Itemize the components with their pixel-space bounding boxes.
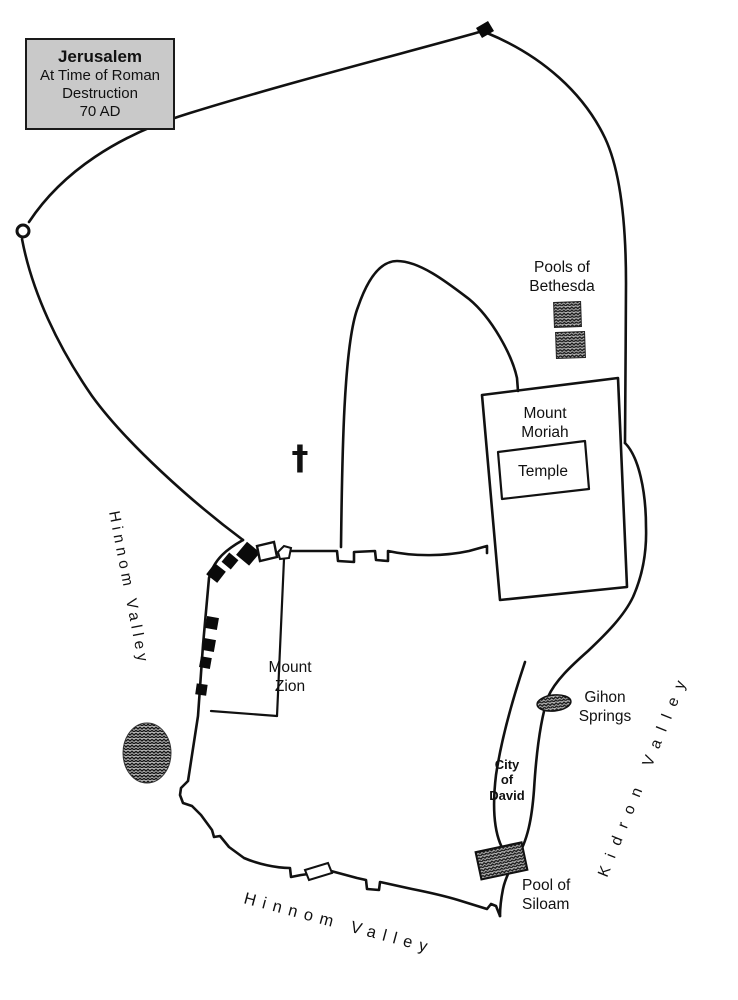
pool-of-siloam-rect [476,842,528,879]
label-hinnom-valley-south: Hinnom Valley [242,889,436,957]
bethesda-pool-upper [554,302,582,328]
hinnom-valley-pool-ellipse [123,723,171,783]
west-wall [22,239,243,540]
map-subtitle-line1: At Time of Roman [40,67,160,85]
bethesda-pool-lower [556,331,586,358]
south-west-and-south-wall [180,540,500,916]
label-pool-of-siloam: Pool of Siloam [522,877,571,913]
pool-siloam-line2: Siloam [522,896,569,913]
map-title: Jerusalem [58,47,142,67]
label-temple: Temple [518,463,568,480]
pools-bethesda-line1: Pools of [534,259,591,276]
label-gihon-springs: Gihon Springs [579,689,632,725]
pools-bethesda-line2: Bethesda [529,278,595,295]
church-cross-icon: † [292,438,309,478]
jerusalem-map-canvas: † Pools of Bethesda Mount Moriah Temple … [0,0,738,1000]
label-mount-moriah: Mount Moriah [521,405,568,441]
map-subtitle-line3: 70 AD [80,103,121,121]
map-subtitle-line2: Destruction [62,85,138,103]
city-of-david-line2: of [501,772,514,787]
south-gate-square [305,863,332,880]
north-east-wall [487,33,626,443]
west-gate-small [278,546,291,559]
city-of-david-line3: David [489,788,524,803]
label-hinnom-valley-west: Hinnom Valley [105,510,152,668]
pool-siloam-line1: Pool of [522,877,571,894]
west-gate-square [257,542,277,561]
city-of-david-line1: City [495,757,520,772]
mount-moriah-line2: Moriah [521,424,568,441]
gihon-line1: Gihon [584,689,625,706]
label-pools-of-bethesda: Pools of Bethesda [529,259,595,295]
mount-zion-line2: Zion [275,678,305,695]
map-title-box: Jerusalem At Time of Roman Destruction 7… [25,38,175,130]
mount-zion-line1: Mount [268,659,312,676]
cross-wall-with-gates [291,546,487,562]
gihon-spring-ellipse [536,693,571,712]
gihon-line2: Springs [579,708,632,725]
mount-moriah-line1: Mount [523,405,567,422]
northwest-corner-tower-marker [17,225,29,237]
label-mount-zion: Mount Zion [268,659,312,695]
mount-zion-south-boundary [211,711,277,716]
map-drawing: † Pools of Bethesda Mount Moriah Temple … [0,0,738,1000]
